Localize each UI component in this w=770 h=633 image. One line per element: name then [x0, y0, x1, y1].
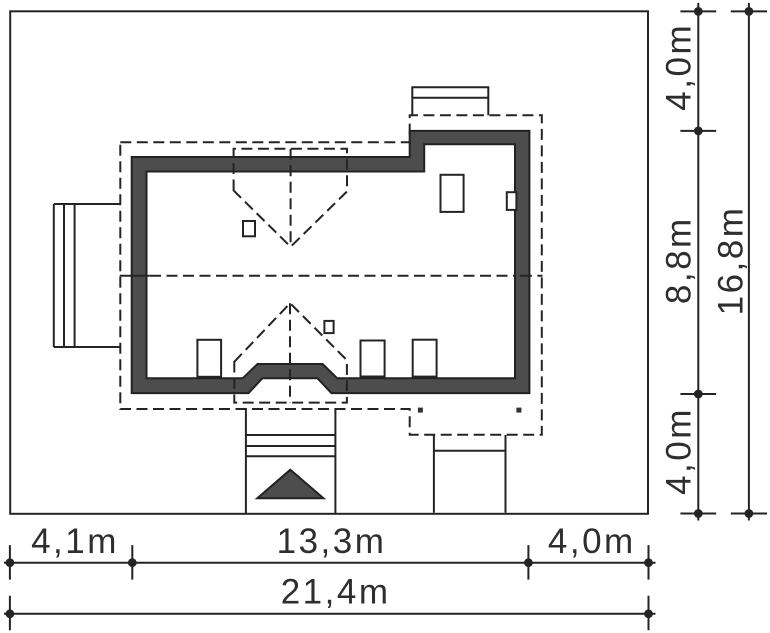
svg-text:4,1m: 4,1m [31, 522, 119, 561]
svg-text:8,8m: 8,8m [660, 216, 699, 304]
svg-text:16,8m: 16,8m [711, 206, 750, 316]
svg-text:4,0m: 4,0m [660, 407, 699, 495]
svg-text:21,4m: 21,4m [281, 573, 391, 612]
svg-text:13,3m: 13,3m [277, 522, 387, 561]
svg-text:4,0m: 4,0m [548, 522, 636, 561]
svg-text:4,0m: 4,0m [660, 23, 699, 111]
